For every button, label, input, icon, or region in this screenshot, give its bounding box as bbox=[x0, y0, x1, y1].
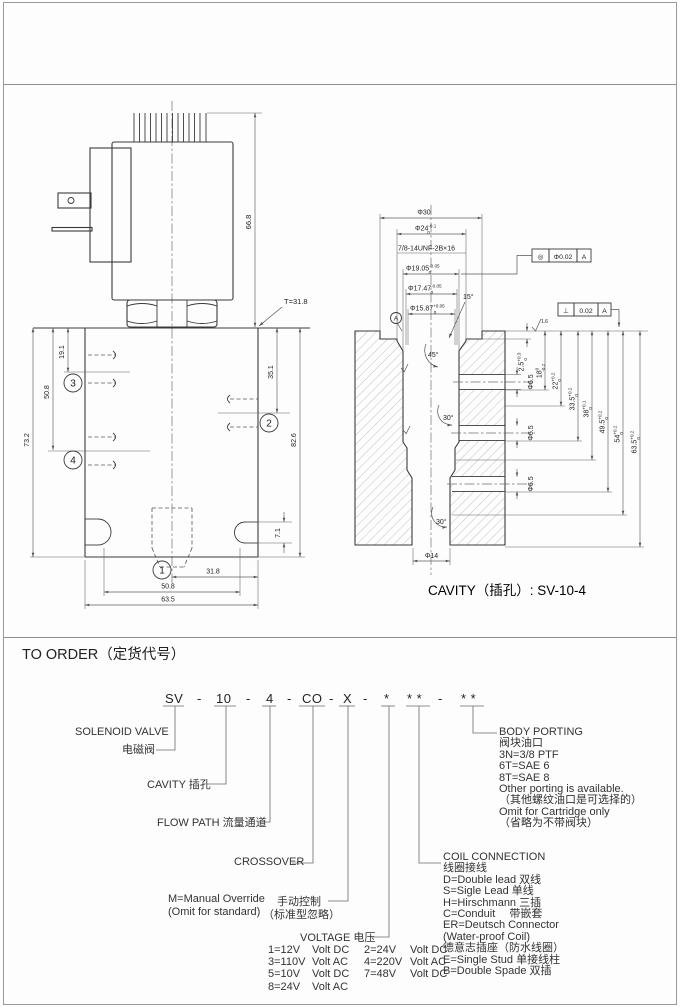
label-solenoid-valve-en: SOLENOID VALVE bbox=[75, 726, 169, 738]
terminal-hole bbox=[68, 198, 74, 204]
coil-connection-list: COIL CONNECTION 线圈接线 D=Double lead 双线 S=… bbox=[443, 852, 564, 977]
label-manual-override-en2: (Omit for standard) bbox=[168, 906, 260, 918]
dim-s22: 22+0.20 bbox=[551, 372, 563, 389]
dim-d24: Φ24-0.10 bbox=[415, 224, 437, 236]
din-connector bbox=[90, 148, 131, 262]
voltage-cell: 4=220V bbox=[364, 956, 410, 968]
dim-s54: 54+0.20 bbox=[613, 425, 625, 442]
voltage-cell bbox=[364, 981, 410, 993]
balloon-4: 4 bbox=[70, 456, 76, 467]
port-balloons: 1 2 3 4 bbox=[64, 374, 278, 579]
code-voltage: * bbox=[384, 691, 390, 706]
code-dash-4: - bbox=[329, 691, 334, 706]
dim-overall-height: 82.6 bbox=[291, 433, 298, 447]
label-cavity: CAVITY 插孔 bbox=[147, 776, 211, 792]
roughness-value: 1.6 bbox=[541, 319, 548, 325]
porting-option: （省略为不带阀块） bbox=[499, 818, 642, 829]
dim-d1747: Φ17.47-0.050 bbox=[408, 284, 442, 296]
voltage-cell: 8=24V bbox=[268, 981, 312, 993]
dim-d1587: Φ15.87+0.050 bbox=[410, 304, 445, 316]
dim-port2-dia: Φ6.5 bbox=[528, 425, 535, 440]
dim-s18: 180-0.2 bbox=[535, 363, 547, 378]
voltage-cell bbox=[410, 981, 462, 993]
surface-finish-mark: 1.6 bbox=[532, 319, 548, 331]
cavity-section-view: Φ30 Φ24-0.10 7/8-14UNF-2B×16 Φ19.05-0.05… bbox=[355, 205, 648, 598]
code-dash-2: - bbox=[246, 691, 251, 706]
code-coil-connection: * * bbox=[407, 691, 422, 706]
dim-body-width: 63.5 bbox=[161, 597, 175, 604]
dim-p2-depth: 35.1 bbox=[268, 365, 275, 379]
voltage-cell: 5=10V bbox=[268, 968, 312, 980]
coil-option: B=Double Spade 双插 bbox=[443, 966, 564, 977]
angle-15: 15° bbox=[463, 293, 474, 301]
dim-s495: 49.5+0.20 bbox=[598, 410, 610, 433]
bottom-bore-dim: Φ14 bbox=[413, 548, 450, 565]
dim-tube-length: T=31.8 bbox=[284, 297, 308, 306]
dim-slot-spacing: 50.8 bbox=[161, 584, 175, 591]
code-dash-6: - bbox=[438, 691, 443, 706]
dim-coil-height: 66.8 bbox=[244, 215, 253, 230]
datum-a-label: A bbox=[394, 316, 399, 323]
concentricity-tolerance: Φ0.02 bbox=[554, 254, 573, 261]
concentricity-frame: ◎ Φ0.02 A bbox=[461, 249, 591, 274]
label-crossover: CROSSOVER bbox=[234, 856, 304, 868]
dim-port3-dia: Φ6.5 bbox=[528, 476, 535, 491]
code-dash-5: - bbox=[363, 691, 368, 706]
dim-p3-depth: 19.1 bbox=[59, 345, 66, 359]
code-dash-1: - bbox=[197, 691, 202, 706]
code-series: SV bbox=[165, 691, 183, 706]
dim-s25: 2.5+0.30 bbox=[517, 352, 529, 371]
dim-port1-dia: Φ6.5 bbox=[528, 374, 535, 389]
code-crossover: CO bbox=[302, 691, 323, 706]
code-body-porting: * * bbox=[461, 691, 476, 706]
balloon-2: 2 bbox=[266, 419, 272, 430]
balloon-1: 1 bbox=[159, 566, 165, 577]
voltage-cell: 3=110V bbox=[268, 956, 312, 968]
valve-dimensions: 66.8 T=31.8 19.1 50.8 73.2 35.1 82.6 bbox=[24, 113, 308, 609]
thread-callout: 7/8-14UNF-2B×16 bbox=[398, 246, 455, 253]
datasheet-page: 1 2 3 4 66.8 T=31.8 19.1 50.8 73 bbox=[0, 0, 680, 1007]
code-manual: X bbox=[343, 691, 352, 706]
dim-p4-depth: 50.8 bbox=[44, 385, 51, 399]
voltage-cell: 2=24V bbox=[364, 944, 410, 956]
valve-front-view: 1 2 3 4 66.8 T=31.8 19.1 50.8 73 bbox=[24, 101, 310, 609]
code-dash-3: - bbox=[287, 691, 292, 706]
dim-d14: Φ14 bbox=[425, 553, 438, 560]
voltage-cell: Volt DC bbox=[312, 944, 364, 956]
label-manual-override-en: M=Manual Override bbox=[168, 893, 265, 905]
angle-30a: 30° bbox=[443, 414, 454, 422]
thread-stem bbox=[134, 113, 206, 142]
balloon-3: 3 bbox=[70, 379, 76, 390]
coil-option: S=Sigle Lead 单线 bbox=[443, 886, 564, 897]
perpendicularity-frame: ⊥ 0.02 A bbox=[558, 303, 619, 327]
coil-body bbox=[112, 142, 233, 300]
hidden-ports bbox=[48, 351, 290, 469]
perpendicularity-tolerance: 0.02 bbox=[579, 308, 592, 315]
perpendicularity-symbol: ⊥ bbox=[563, 308, 569, 315]
dim-s335: 33.5+0.20 bbox=[568, 387, 580, 410]
dim-port1-offset: 31.8 bbox=[206, 569, 220, 576]
porting-option: 6T=SAE 6 bbox=[499, 761, 642, 772]
perpendicularity-datum-ref: A bbox=[602, 308, 607, 315]
concentricity-datum-ref: A bbox=[582, 254, 587, 261]
code-cavity: 10 bbox=[216, 691, 231, 706]
voltage-cell: 1=12V bbox=[268, 944, 312, 956]
voltage-cell: Volt AC bbox=[312, 981, 364, 993]
cavity-caption: CAVITY（插孔）: SV-10-4 bbox=[428, 583, 587, 598]
dim-d1905: Φ19.05-0.050 bbox=[406, 264, 440, 276]
valve-body bbox=[33, 328, 310, 557]
chamfer-angles: 45° 30° 30° bbox=[425, 344, 454, 527]
voltage-table: 1=12V Volt DC 2=24V Volt DC 3=110V Volt … bbox=[268, 944, 462, 993]
concentricity-symbol: ◎ bbox=[538, 254, 544, 261]
spade-terminal bbox=[58, 193, 91, 208]
ground-pin bbox=[52, 228, 92, 232]
coil-option: 德意志插座（防水线圈） bbox=[443, 943, 564, 954]
dim-slot-width: 7.1 bbox=[275, 528, 282, 538]
cavity-left-wall bbox=[355, 331, 412, 545]
code-flow-path: 4 bbox=[266, 691, 274, 706]
angle-45: 45° bbox=[428, 351, 439, 359]
dim-body-height: 73.2 bbox=[24, 433, 31, 447]
voltage-cell: Volt AC bbox=[312, 956, 364, 968]
dim-s635: 63.5+0.20 bbox=[630, 430, 642, 453]
dim-s38: 38+0.10 bbox=[582, 400, 594, 417]
dim-d30: Φ30 bbox=[417, 210, 430, 217]
label-solenoid-valve-zh: 电磁阀 bbox=[122, 741, 155, 757]
label-manual-override-zh2: （标准型忽略） bbox=[263, 906, 340, 922]
label-voltage: VOLTAGE 电压 bbox=[300, 929, 375, 945]
voltage-cell: 7=48V bbox=[364, 968, 410, 980]
voltage-cell: Volt DC bbox=[312, 968, 364, 980]
technical-drawings: 1 2 3 4 66.8 T=31.8 19.1 50.8 73 bbox=[0, 84, 680, 637]
body-porting-list: BODY PORTING 阀块油口 3N=3/8 PTF 6T=SAE 6 8T… bbox=[499, 727, 642, 830]
label-flow-path: FLOW PATH 流量通道 bbox=[157, 814, 267, 830]
